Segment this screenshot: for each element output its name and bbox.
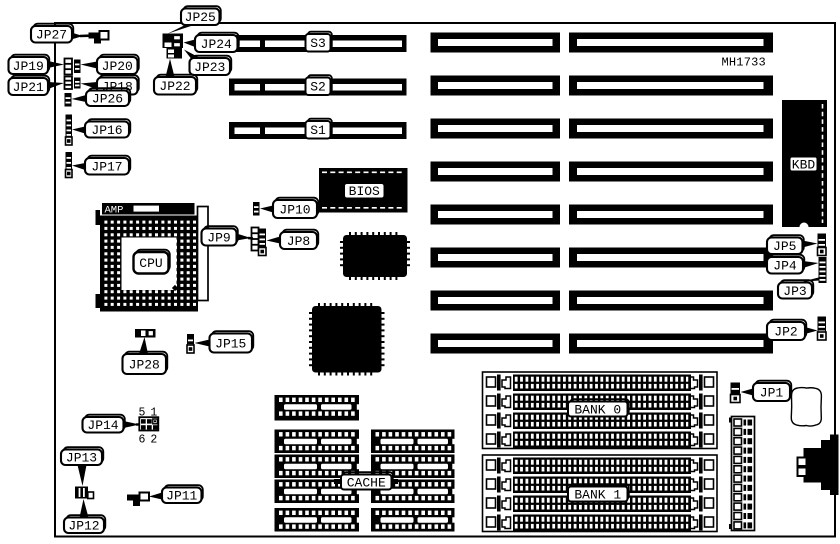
svg-text:JP25: JP25 [185,10,216,25]
svg-text:JP26: JP26 [92,92,123,107]
svg-text:BIOS: BIOS [349,184,380,199]
svg-text:CPU: CPU [139,256,162,271]
svg-text:JP5: JP5 [773,239,796,254]
svg-text:JP10: JP10 [279,202,310,217]
svg-text:S2: S2 [310,80,326,95]
svg-text:AMP: AMP [105,205,124,217]
svg-text:JP3: JP3 [783,284,806,299]
svg-text:JP2: JP2 [774,324,797,339]
svg-text:JP4: JP4 [773,259,797,274]
svg-text:JP20: JP20 [102,59,133,74]
svg-text:MH1733: MH1733 [722,56,766,70]
svg-text:51: 51 [139,407,163,420]
svg-text:JP1: JP1 [760,385,784,400]
svg-text:JP13: JP13 [66,451,97,466]
svg-text:JP23: JP23 [194,60,225,75]
svg-text:JP11: JP11 [166,489,197,504]
svg-text:JP28: JP28 [129,357,160,372]
svg-text:JP17: JP17 [91,160,122,175]
svg-text:62: 62 [139,434,163,447]
svg-text:S3: S3 [310,36,326,51]
svg-text:JP22: JP22 [159,79,190,94]
svg-text:JP9: JP9 [207,230,230,245]
svg-text:CACHE: CACHE [347,475,386,490]
svg-text:JP19: JP19 [13,59,44,74]
svg-text:JP27: JP27 [36,28,67,43]
svg-text:JP12: JP12 [68,519,99,534]
svg-text:JP24: JP24 [201,37,232,52]
svg-text:JP16: JP16 [91,123,122,138]
svg-text:JP21: JP21 [13,80,44,95]
svg-text:JP14: JP14 [87,418,118,433]
svg-text:BANK 1: BANK 1 [574,487,621,502]
svg-text:JP15: JP15 [215,336,246,351]
svg-text:JP8: JP8 [287,234,310,249]
svg-text:BANK 0: BANK 0 [574,402,621,417]
svg-text:KBD: KBD [792,157,816,172]
svg-text:S1: S1 [310,123,326,138]
